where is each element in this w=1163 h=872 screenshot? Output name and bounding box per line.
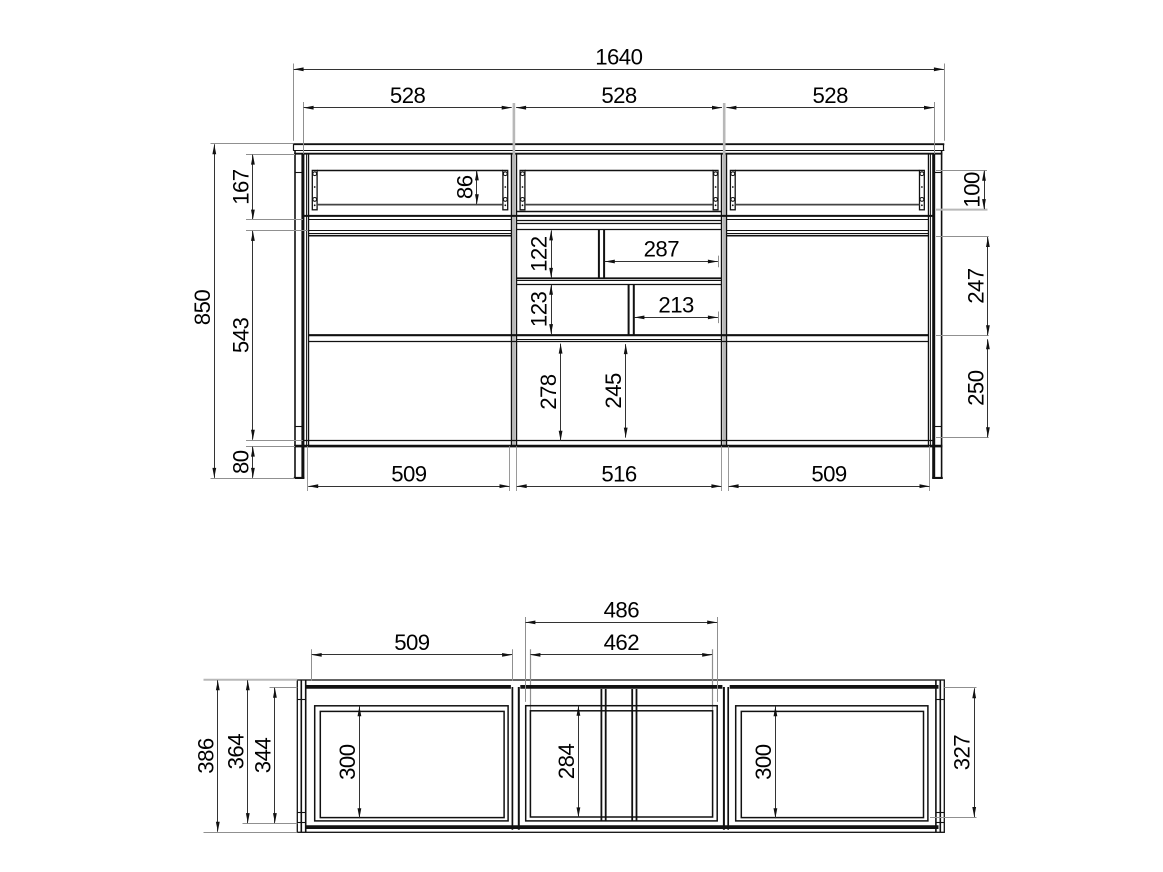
svg-text:213: 213 xyxy=(658,293,694,318)
svg-text:486: 486 xyxy=(604,598,640,623)
svg-text:287: 287 xyxy=(644,237,680,262)
svg-text:528: 528 xyxy=(601,83,637,108)
svg-text:245: 245 xyxy=(601,373,626,409)
svg-text:543: 543 xyxy=(228,318,253,354)
svg-text:528: 528 xyxy=(390,83,426,108)
svg-text:250: 250 xyxy=(963,370,988,406)
svg-text:509: 509 xyxy=(811,461,847,486)
svg-text:122: 122 xyxy=(527,236,552,272)
svg-text:278: 278 xyxy=(536,374,561,410)
svg-text:462: 462 xyxy=(604,630,640,655)
svg-text:364: 364 xyxy=(223,734,248,770)
svg-text:327: 327 xyxy=(950,735,975,771)
svg-text:247: 247 xyxy=(963,268,988,304)
svg-text:284: 284 xyxy=(554,744,579,780)
svg-text:86: 86 xyxy=(452,175,477,199)
svg-text:1640: 1640 xyxy=(595,45,642,70)
svg-text:344: 344 xyxy=(250,738,275,774)
svg-text:100: 100 xyxy=(960,172,985,208)
svg-text:80: 80 xyxy=(228,450,253,474)
svg-text:300: 300 xyxy=(335,744,360,780)
svg-text:516: 516 xyxy=(601,461,637,486)
svg-text:850: 850 xyxy=(190,290,215,326)
svg-text:509: 509 xyxy=(391,461,427,486)
svg-text:300: 300 xyxy=(751,744,776,780)
svg-text:528: 528 xyxy=(813,83,849,108)
svg-text:386: 386 xyxy=(193,738,218,774)
svg-text:167: 167 xyxy=(228,169,253,205)
svg-text:123: 123 xyxy=(527,292,552,328)
svg-text:509: 509 xyxy=(394,630,430,655)
